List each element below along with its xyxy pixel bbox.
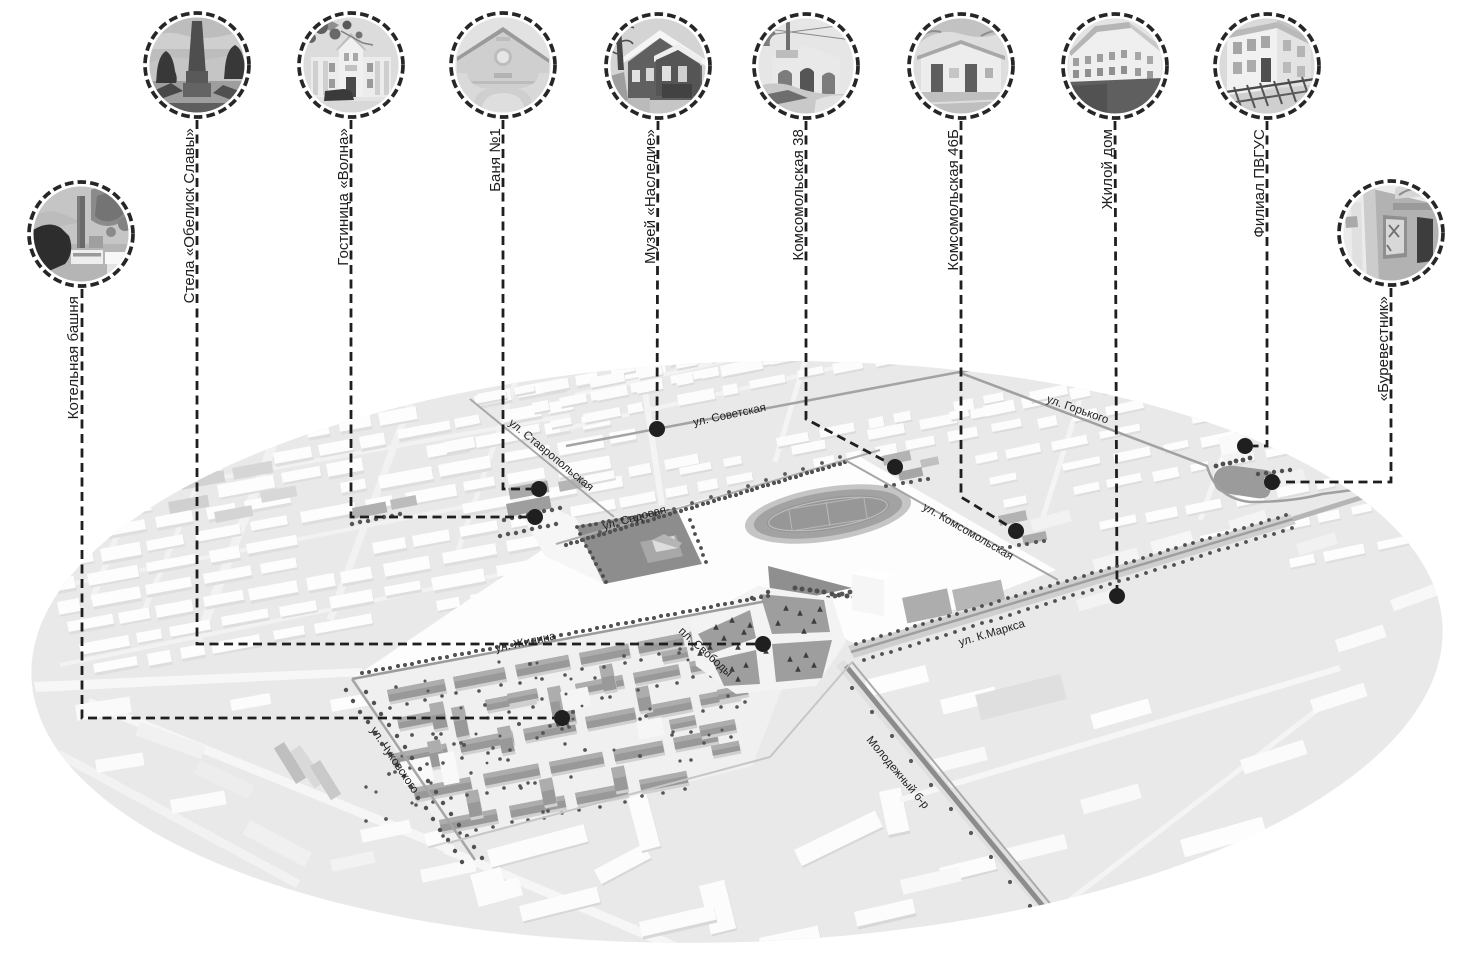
svg-text:«Буревестник»: «Буревестник» (1375, 296, 1392, 401)
svg-text:Гостиница «Волна»: Гостиница «Волна» (335, 128, 352, 266)
svg-text:Филиал ПВГУС: Филиал ПВГУС (1251, 129, 1268, 238)
svg-text:Комсомольская 38: Комсомольская 38 (790, 129, 807, 261)
svg-text:Стела «Обелиск Славы»: Стела «Обелиск Славы» (181, 128, 198, 303)
svg-text:Музей «Наследие»: Музей «Наследие» (642, 129, 659, 264)
svg-text:Баня №1: Баня №1 (487, 128, 504, 192)
svg-text:Котельная башня: Котельная башня (65, 296, 82, 419)
svg-text:Жилой дом: Жилой дом (1099, 129, 1116, 209)
svg-text:Комсомольская 46Б: Комсомольская 46Б (945, 129, 962, 271)
